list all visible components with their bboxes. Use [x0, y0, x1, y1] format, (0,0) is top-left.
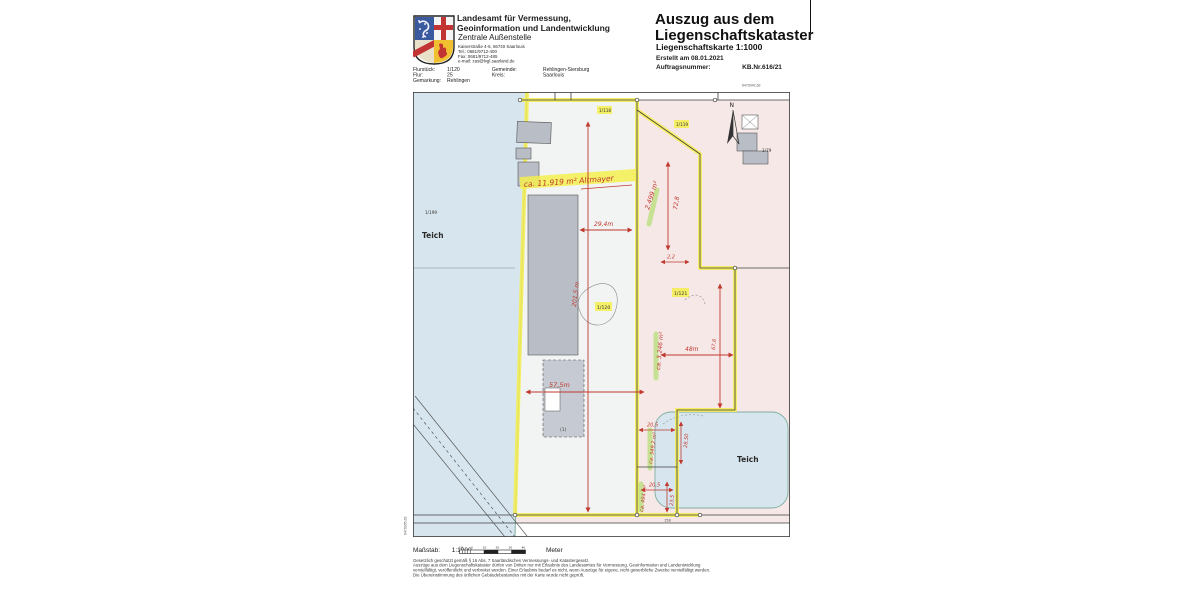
measure-notch2-depth: 23,5 [669, 495, 676, 507]
scalebar-ticks: 10 0 10 20 30 40 [459, 545, 525, 549]
garage-outline [742, 115, 758, 129]
agency-office: Zentrale Außenstelle [458, 33, 531, 42]
building-ref-label: (1) [560, 427, 567, 433]
order-number-value: KB.Nr.616/21 [742, 64, 782, 71]
teich-label-right: Teich [737, 455, 759, 464]
agency-name-line2: Geoinformation und Landentwicklung [457, 24, 610, 34]
scalebar-tick: 30 [509, 545, 513, 549]
coordinate-top-right: 6470042,63 [742, 84, 760, 88]
teich-label-left: Teich [422, 231, 444, 240]
measure-bottom-width: 57,5m [549, 381, 570, 389]
scanned-cadastral-document: Landesamt für Vermessung, Geoinformation… [0, 0, 1200, 600]
parcel-label-118: 1/118 [599, 108, 611, 113]
measure-right-depth: 67,6 [711, 339, 718, 351]
measure-notch2-width: 20,5 [649, 483, 660, 489]
scalebar-bar [460, 550, 526, 554]
parcel-label-121: 1/121 [674, 291, 687, 297]
street-number-label: 158 [664, 519, 671, 523]
title-line1: Auszug aus dem [655, 12, 813, 28]
measure-right-width: 48m [685, 346, 699, 353]
meter-label: Meter [546, 547, 563, 554]
scalebar-tick: 0 [471, 545, 473, 549]
document-subtitle: Liegenschaftskarte 1:1000 [656, 42, 762, 52]
agency-name: Landesamt für Vermessung, Geoinformation… [457, 14, 610, 33]
measure-notch1-width: 20,5 [647, 423, 658, 429]
agency-email: e-mail: zas@lvgl.saarland.de [458, 59, 568, 64]
scalebar-tick: 40 [522, 545, 526, 549]
saarland-coat-of-arms [413, 15, 455, 70]
cadastral-map: N 1/199 1/118 1/119 1/120 1/121 1/79 (1)… [413, 92, 790, 537]
parcel-label-79: 1/79 [762, 148, 772, 153]
coat-of-arms-icon [413, 15, 455, 65]
parcel-label-water: 1/199 [425, 210, 437, 215]
scalebar: 10 0 10 20 30 40 [459, 545, 539, 557]
document-title: Auszug aus dem Liegenschaftskataster [655, 12, 813, 44]
scalebar-tick: 10 [459, 545, 463, 549]
pond-bottom-right [655, 412, 788, 508]
scalebar-tick: 10 [483, 545, 487, 549]
created-date: Erstellt am 08.01.2021 [656, 55, 724, 62]
parcel-label-120: 1/120 [597, 305, 610, 311]
parcel-label-119: 1/119 [676, 122, 688, 127]
gemarkung-value: Rehlingen [447, 78, 492, 83]
measure-gap: 2,2 [667, 255, 675, 261]
legal-line-4: Die Übereinstimmung des örtlichen Gebäud… [413, 573, 629, 578]
measure-notch1-depth: 28,50 [683, 433, 690, 448]
parcel-fields: Flurstück: 1/120 Gemeinde: Rehlingen-Sie… [413, 67, 744, 91]
north-label: N [730, 102, 735, 109]
coordinate-bottom-left: 6470005,63 [404, 517, 408, 535]
gemarkung-label: Gemarkung: [413, 78, 447, 83]
scalebar-tick: 20 [496, 545, 500, 549]
scale-label: Maßstab: [413, 547, 440, 554]
measure-top-width: 29,4m [594, 221, 613, 228]
legal-text-block: Gesetzlich geschützt gemäß § 16 Abs. 7 S… [413, 558, 813, 594]
water-area-left [413, 92, 527, 537]
